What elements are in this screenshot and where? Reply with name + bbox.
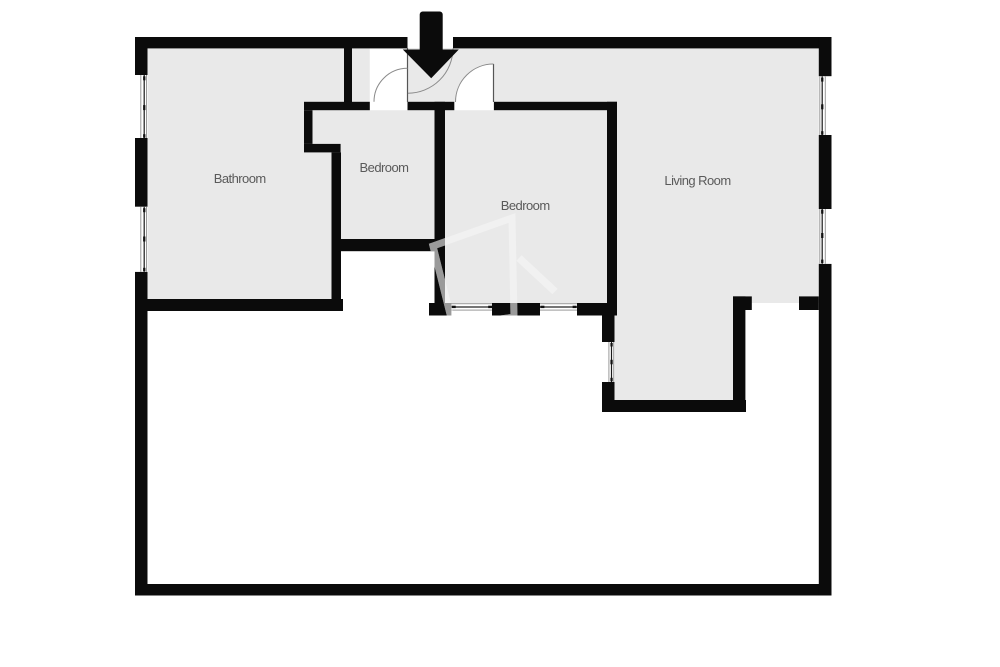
svg-text:Living Room: Living Room	[664, 173, 730, 188]
svg-text:Bathroom: Bathroom	[214, 171, 266, 186]
svg-text:Bedroom: Bedroom	[501, 198, 550, 213]
svg-text:Bedroom: Bedroom	[360, 160, 409, 175]
